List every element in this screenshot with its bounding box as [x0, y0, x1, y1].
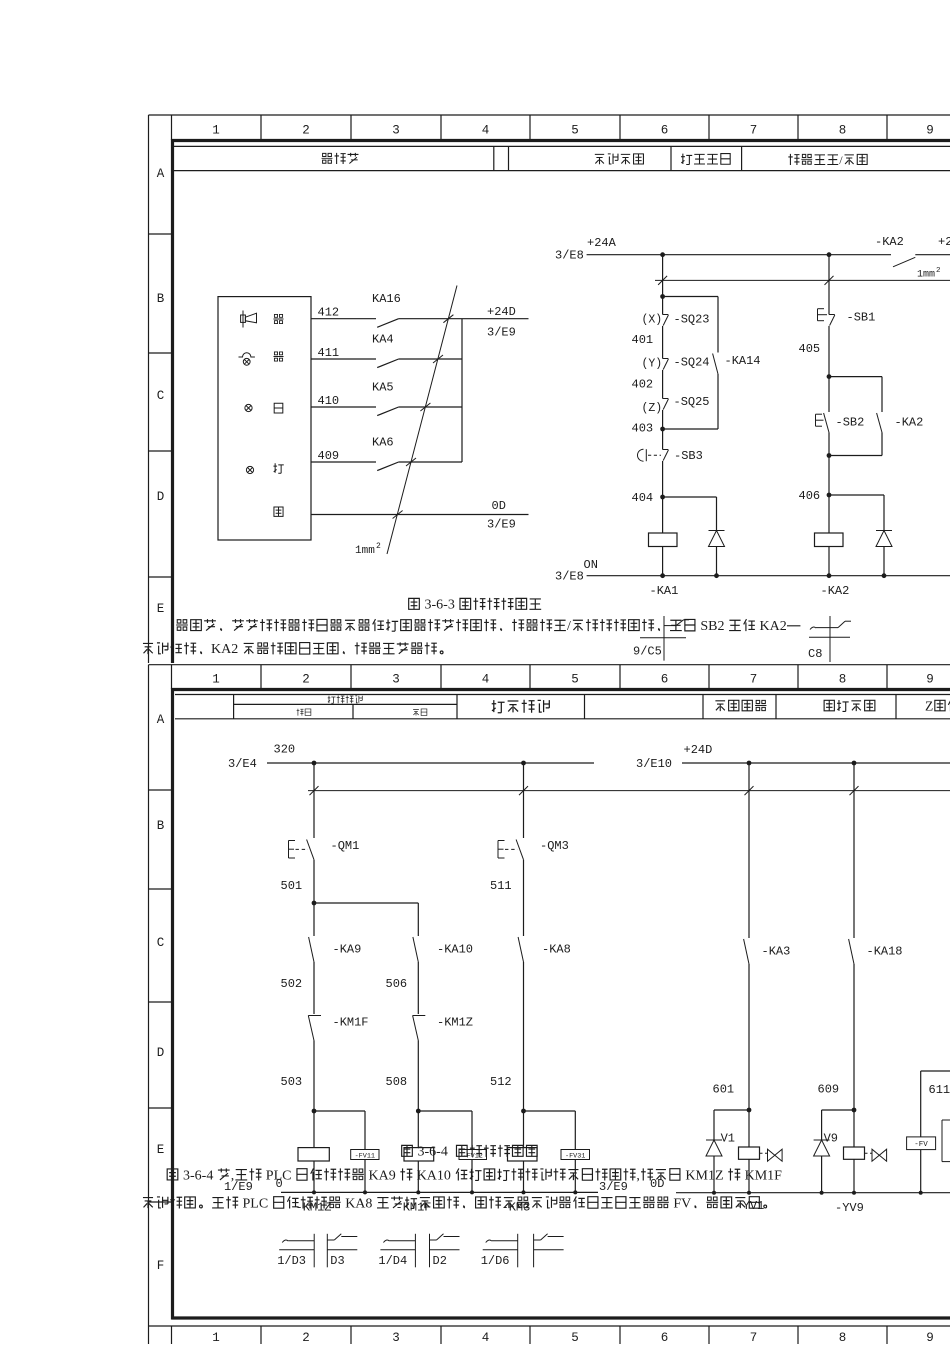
svg-text:1: 1 — [212, 124, 220, 138]
svg-text:0D: 0D — [492, 499, 506, 513]
svg-text:503: 503 — [281, 1075, 303, 1089]
svg-text:-SB3: -SB3 — [674, 449, 703, 463]
svg-text:-KA2: -KA2 — [875, 235, 904, 249]
svg-text:-KM1Z: -KM1Z — [437, 1015, 473, 1029]
svg-text:3/E9: 3/E9 — [487, 325, 516, 339]
svg-text:-KA18: -KA18 — [867, 944, 903, 958]
svg-text:501: 501 — [281, 879, 303, 893]
svg-text:(Z): (Z) — [642, 402, 663, 415]
svg-text:406: 406 — [799, 489, 821, 503]
svg-text:-KA2: -KA2 — [895, 415, 924, 429]
svg-text:-KM1F: -KM1F — [333, 1015, 369, 1029]
svg-text:-QM3: -QM3 — [540, 839, 569, 853]
svg-text:1: 1 — [212, 673, 220, 687]
svg-text:-KA14: -KA14 — [725, 354, 761, 368]
svg-text:3-6-3: 3-6-3 — [421, 598, 458, 613]
svg-text:8: 8 — [839, 124, 847, 138]
svg-text:6: 6 — [661, 124, 669, 138]
svg-text:4: 4 — [482, 673, 490, 687]
svg-text:2: 2 — [302, 673, 310, 687]
svg-text:410: 410 — [318, 394, 340, 408]
svg-text:F: F — [157, 1259, 165, 1273]
svg-text:2: 2 — [302, 1331, 310, 1344]
svg-text:511: 511 — [490, 879, 512, 893]
svg-text:+24A: +24A — [587, 236, 617, 250]
svg-text:412: 412 — [318, 306, 340, 320]
svg-text:5: 5 — [571, 673, 579, 687]
svg-text:401: 401 — [632, 333, 654, 347]
svg-text:1mm: 1mm — [917, 269, 935, 280]
svg-text:-SQ24: -SQ24 — [674, 355, 710, 369]
svg-text:1/D3: 1/D3 — [277, 1254, 306, 1268]
svg-text:8: 8 — [839, 673, 847, 687]
svg-text:C: C — [157, 936, 165, 950]
svg-text:KM1F: KM1F — [741, 1168, 782, 1183]
svg-text:7: 7 — [750, 124, 758, 138]
svg-text:E: E — [157, 602, 165, 616]
svg-text:-SQ23: -SQ23 — [674, 312, 710, 326]
svg-text:C8: C8 — [808, 647, 822, 661]
svg-text:4: 4 — [482, 124, 490, 138]
svg-text:2: 2 — [302, 124, 310, 138]
svg-text:ON: ON — [584, 558, 598, 572]
svg-text:1: 1 — [212, 1331, 220, 1344]
svg-text:KA9: KA9 — [365, 1168, 399, 1183]
svg-text:1mm: 1mm — [355, 545, 375, 557]
svg-text:KA10: KA10 — [413, 1168, 454, 1183]
svg-text:Z: Z — [925, 698, 933, 713]
svg-text:320: 320 — [274, 743, 296, 757]
svg-text:-KM1Z: -KM1Z — [296, 1201, 332, 1215]
svg-text:3-6-4: 3-6-4 — [414, 1145, 455, 1160]
svg-text:V9: V9 — [824, 1131, 838, 1145]
svg-text:-SQ25: -SQ25 — [674, 395, 710, 409]
svg-text:3-6-4: 3-6-4 — [180, 1168, 217, 1183]
svg-text:A: A — [157, 713, 165, 727]
svg-text:8: 8 — [839, 1331, 847, 1344]
svg-text:-YV9: -YV9 — [835, 1201, 864, 1215]
svg-text:PLC: PLC — [239, 1196, 272, 1211]
svg-text:409: 409 — [318, 449, 340, 463]
svg-text:-KA10: -KA10 — [437, 942, 473, 956]
svg-text:3: 3 — [392, 673, 400, 687]
svg-text:+24D: +24D — [684, 743, 713, 757]
svg-text:3/E9: 3/E9 — [487, 517, 516, 531]
svg-text:508: 508 — [386, 1075, 408, 1089]
svg-text:9: 9 — [926, 673, 934, 687]
svg-text:B: B — [157, 819, 165, 833]
svg-text:6: 6 — [661, 673, 669, 687]
svg-text:4: 4 — [482, 1331, 490, 1344]
svg-text:C: C — [157, 389, 165, 403]
svg-text:506: 506 — [386, 977, 408, 991]
svg-text:D: D — [157, 1046, 165, 1060]
svg-text:+24A: +24A — [938, 235, 950, 249]
svg-text:D3: D3 — [330, 1254, 344, 1268]
svg-text:(X): (X) — [642, 313, 663, 326]
svg-text:402: 402 — [632, 377, 654, 391]
svg-text:3: 3 — [392, 124, 400, 138]
svg-text:SB2: SB2 — [697, 619, 728, 634]
svg-text:,: , — [231, 1168, 235, 1183]
svg-text:3/E9: 3/E9 — [599, 1180, 628, 1194]
svg-text:,: , — [636, 1168, 640, 1183]
svg-text:-KA1: -KA1 — [650, 584, 679, 598]
svg-text:9: 9 — [926, 1331, 934, 1344]
svg-text:/: / — [839, 153, 843, 167]
svg-text:5: 5 — [571, 124, 579, 138]
svg-text:411: 411 — [318, 346, 340, 360]
svg-text:5: 5 — [571, 1331, 579, 1344]
svg-text:9: 9 — [926, 124, 934, 138]
svg-text:-KA2: -KA2 — [821, 584, 850, 598]
svg-text:B: B — [157, 292, 165, 306]
svg-text:3/E10: 3/E10 — [636, 757, 672, 771]
svg-text:-FV: -FV — [914, 1141, 928, 1149]
svg-text:PLC: PLC — [262, 1168, 295, 1183]
svg-text:KA6: KA6 — [372, 435, 394, 449]
svg-text:9/C5: 9/C5 — [633, 645, 662, 659]
svg-text:6: 6 — [661, 1331, 669, 1344]
svg-text:601: 601 — [713, 1083, 735, 1097]
svg-text:KA2: KA2 — [756, 619, 787, 634]
svg-text:KA16: KA16 — [372, 292, 401, 306]
svg-text:502: 502 — [281, 977, 303, 991]
svg-text:-QM1: -QM1 — [331, 839, 360, 853]
svg-text:-FV31: -FV31 — [565, 1152, 585, 1160]
svg-text:405: 405 — [799, 342, 821, 356]
svg-text:-KA8: -KA8 — [542, 942, 571, 956]
svg-text:3/E8: 3/E8 — [555, 570, 584, 584]
svg-text:2: 2 — [936, 267, 941, 275]
svg-text:KA5: KA5 — [372, 380, 394, 394]
svg-text:-KA9: -KA9 — [333, 942, 362, 956]
svg-text:2: 2 — [376, 542, 381, 551]
svg-text:404: 404 — [632, 491, 654, 505]
svg-text:403: 403 — [632, 421, 654, 435]
svg-text:611: 611 — [929, 1083, 950, 1097]
svg-text:3/E8: 3/E8 — [555, 249, 584, 263]
svg-text:-SB1: -SB1 — [847, 310, 876, 324]
svg-text:KA2: KA2 — [211, 642, 242, 657]
svg-text:3: 3 — [392, 1331, 400, 1344]
svg-text:609: 609 — [818, 1083, 840, 1097]
svg-text:+24D: +24D — [487, 305, 516, 319]
svg-text:D2: D2 — [433, 1254, 447, 1268]
svg-text:V1: V1 — [721, 1131, 735, 1145]
svg-text:1/E9: 1/E9 — [224, 1180, 253, 1194]
svg-text:3/E4: 3/E4 — [228, 757, 257, 771]
svg-text:D: D — [157, 490, 165, 504]
svg-text:7: 7 — [750, 673, 758, 687]
svg-text:/: / — [567, 619, 571, 634]
svg-text:1/D6: 1/D6 — [481, 1254, 510, 1268]
svg-text:1/D4: 1/D4 — [378, 1254, 407, 1268]
svg-text:(Y): (Y) — [642, 357, 663, 370]
svg-text:512: 512 — [490, 1075, 512, 1089]
svg-text:KA8: KA8 — [342, 1196, 376, 1211]
svg-text:KM1Z: KM1Z — [682, 1168, 727, 1183]
svg-text:KA4: KA4 — [372, 332, 394, 346]
svg-text:-KA3: -KA3 — [762, 944, 791, 958]
svg-text:FV: FV — [670, 1196, 691, 1211]
svg-text:E: E — [157, 1143, 165, 1157]
svg-text:7: 7 — [750, 1331, 758, 1344]
svg-text:A: A — [157, 167, 165, 181]
svg-text:-FV11: -FV11 — [355, 1152, 375, 1160]
svg-text:-SB2: -SB2 — [836, 415, 865, 429]
